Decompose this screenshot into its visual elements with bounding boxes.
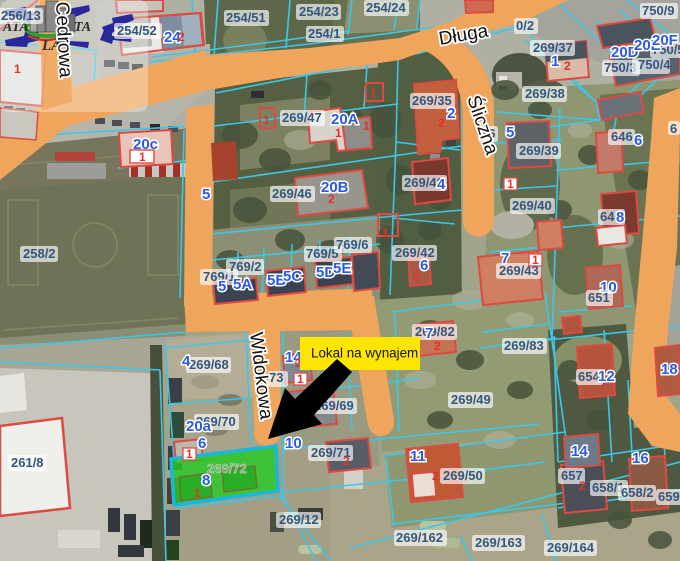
svg-text:1: 1 <box>14 62 21 76</box>
svg-text:2: 2 <box>178 30 185 44</box>
svg-text:269/47: 269/47 <box>282 110 322 125</box>
svg-text:73: 73 <box>269 370 283 385</box>
svg-text:11: 11 <box>410 448 426 465</box>
svg-text:769/5: 769/5 <box>306 246 339 261</box>
svg-text:646: 646 <box>611 129 633 144</box>
svg-text:TA: TA <box>74 20 91 35</box>
svg-text:1: 1 <box>335 126 342 140</box>
svg-text:750/3: 750/3 <box>604 60 637 75</box>
svg-text:750/4: 750/4 <box>638 57 671 72</box>
svg-text:5E: 5E <box>333 260 351 277</box>
svg-text:2: 2 <box>579 479 586 493</box>
svg-text:20F: 20F <box>652 32 678 49</box>
svg-text:6: 6 <box>198 435 206 452</box>
svg-text:769/6: 769/6 <box>336 237 369 252</box>
svg-text:2: 2 <box>413 268 420 282</box>
svg-text:269/68: 269/68 <box>189 357 229 372</box>
svg-text:256/13: 256/13 <box>1 8 41 23</box>
svg-text:Cedrowa: Cedrowa <box>51 1 76 78</box>
svg-text:7: 7 <box>425 325 433 342</box>
svg-text:1: 1 <box>139 150 146 164</box>
svg-text:658/2: 658/2 <box>621 485 654 500</box>
svg-text:16: 16 <box>632 450 649 467</box>
svg-text:12: 12 <box>598 368 615 385</box>
svg-text:269/35: 269/35 <box>412 93 452 108</box>
svg-text:254/24: 254/24 <box>366 0 407 15</box>
svg-text:8: 8 <box>202 472 210 489</box>
svg-text:2: 2 <box>328 192 335 206</box>
svg-text:269/164: 269/164 <box>547 540 595 555</box>
svg-text:5: 5 <box>506 124 514 141</box>
svg-text:5A: 5A <box>233 276 252 293</box>
svg-text:0/2: 0/2 <box>516 18 534 33</box>
svg-text:1: 1 <box>363 119 370 133</box>
svg-text:6: 6 <box>420 257 428 274</box>
svg-text:1: 1 <box>370 86 377 100</box>
svg-text:6: 6 <box>634 132 642 149</box>
svg-text:261/8: 261/8 <box>11 455 44 470</box>
svg-text:2: 2 <box>432 469 439 483</box>
svg-text:269/39: 269/39 <box>519 143 559 158</box>
svg-text:269/82: 269/82 <box>415 324 455 339</box>
svg-text:659/: 659/ <box>658 489 680 504</box>
svg-text:1: 1 <box>551 53 559 70</box>
svg-text:254/23: 254/23 <box>299 4 339 19</box>
svg-text:651: 651 <box>588 290 610 305</box>
svg-text:750/9: 750/9 <box>642 3 675 18</box>
svg-text:269/46: 269/46 <box>272 186 312 201</box>
svg-text:2: 2 <box>447 105 455 122</box>
svg-text:269/12: 269/12 <box>279 512 319 527</box>
svg-text:269/163: 269/163 <box>475 535 522 550</box>
svg-text:269/38: 269/38 <box>525 86 565 101</box>
svg-text:769/2: 769/2 <box>229 259 262 274</box>
svg-text:1: 1 <box>532 253 539 267</box>
svg-text:2: 2 <box>343 454 350 468</box>
svg-text:2: 2 <box>438 116 445 130</box>
svg-text:1: 1 <box>297 372 304 386</box>
svg-text:1: 1 <box>263 113 270 127</box>
svg-text:4: 4 <box>437 176 446 193</box>
svg-text:14: 14 <box>571 443 588 460</box>
svg-text:1: 1 <box>382 226 389 240</box>
svg-text:258/2: 258/2 <box>23 246 56 261</box>
svg-text:269/40: 269/40 <box>512 198 552 213</box>
svg-text:2: 2 <box>564 59 571 73</box>
svg-text:8: 8 <box>616 209 624 226</box>
svg-text:7: 7 <box>501 250 509 267</box>
svg-text:1: 1 <box>507 177 514 191</box>
svg-text:269/49: 269/49 <box>451 392 491 407</box>
svg-text:1: 1 <box>194 486 201 500</box>
svg-text:269/42: 269/42 <box>395 245 435 260</box>
svg-text:1: 1 <box>186 447 193 461</box>
svg-text:269/50: 269/50 <box>443 468 483 483</box>
svg-text:Lokal na wynajem: Lokal na wynajem <box>311 346 418 361</box>
svg-text:18: 18 <box>661 361 678 378</box>
svg-text:269/72: 269/72 <box>207 461 247 476</box>
svg-text:254/1: 254/1 <box>308 26 341 41</box>
svg-text:269/162: 269/162 <box>396 530 443 545</box>
svg-text:5: 5 <box>202 186 210 203</box>
svg-text:10: 10 <box>285 435 302 452</box>
svg-text:4: 4 <box>182 353 191 370</box>
svg-text:269/83: 269/83 <box>504 338 544 353</box>
svg-text:5: 5 <box>218 278 226 295</box>
svg-text:2: 2 <box>434 339 441 353</box>
svg-text:254/52: 254/52 <box>117 23 157 38</box>
svg-text:5C: 5C <box>283 268 302 285</box>
svg-text:20B: 20B <box>321 179 349 196</box>
svg-text:6: 6 <box>670 121 677 136</box>
svg-text:254/51: 254/51 <box>226 10 266 25</box>
svg-text:20a: 20a <box>186 418 212 435</box>
